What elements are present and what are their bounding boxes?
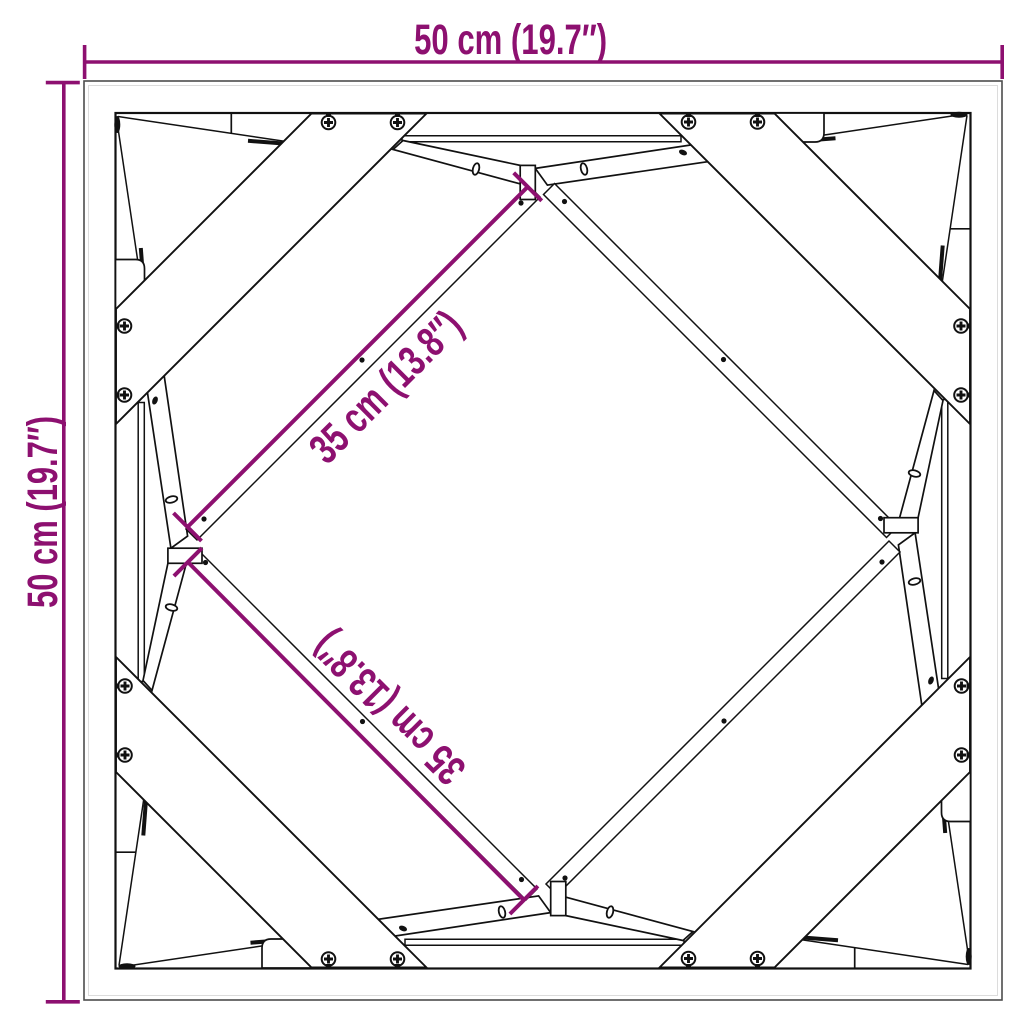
svg-text:50 cm (19.7″): 50 cm (19.7″) bbox=[20, 416, 67, 608]
svg-text:50 cm (19.7″): 50 cm (19.7″) bbox=[414, 17, 607, 64]
